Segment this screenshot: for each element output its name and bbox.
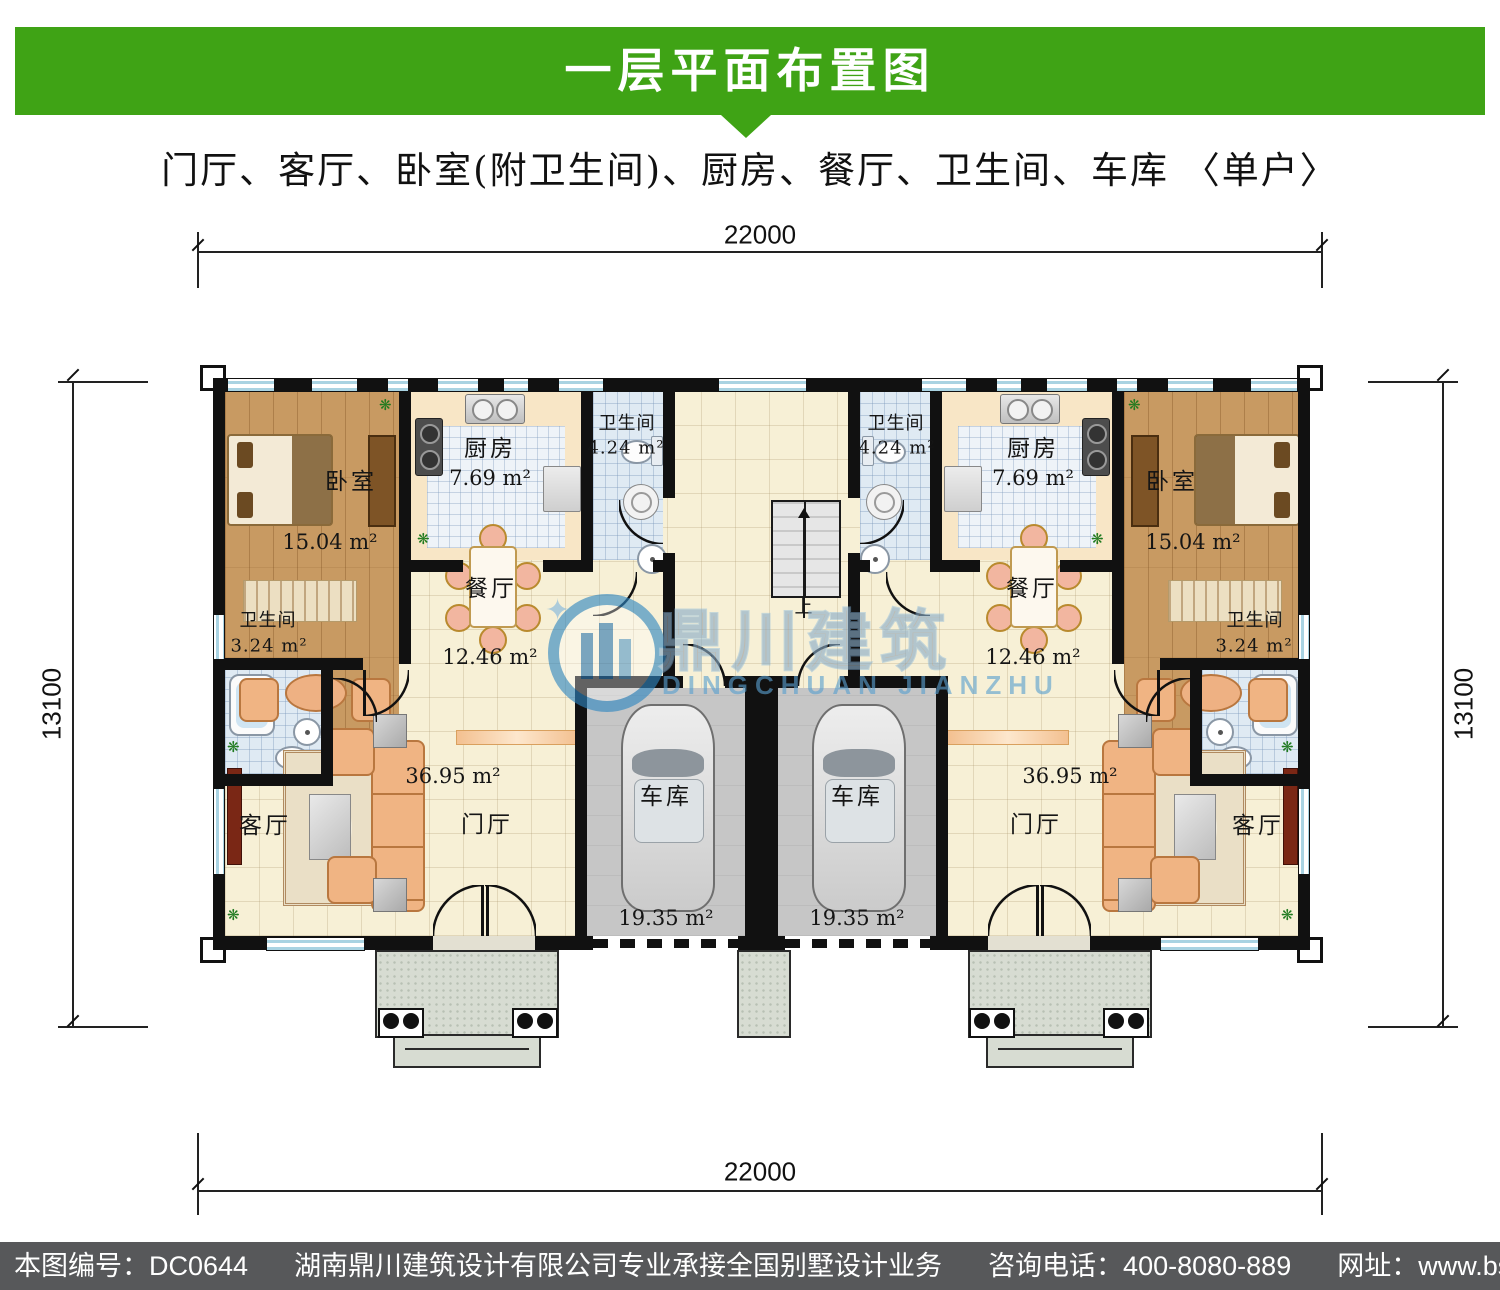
chair-icon: [513, 562, 541, 590]
entry-door-left-unit: [485, 885, 536, 936]
door-arc-bath-top-left: [593, 572, 637, 616]
door-leaf: [486, 885, 489, 936]
room-label-foyer: 门厅: [1010, 805, 1062, 839]
sofa-seat-icon: [1150, 856, 1200, 904]
room-label-living: 客厅: [1232, 806, 1284, 840]
entrance-threshold-left: [433, 936, 535, 950]
porch-column-icon: [512, 1008, 558, 1038]
wall-kitchen-bottom-left: [399, 560, 463, 572]
window-icon: [213, 788, 225, 875]
wall-bedroom-bottom-right: [1160, 658, 1310, 670]
window-icon: [1046, 378, 1088, 392]
window-icon: [718, 378, 807, 392]
wall-garage-right: [936, 688, 948, 936]
garage-door-right: [785, 939, 930, 948]
wall-hall-left: [663, 378, 675, 498]
wall-bath-side-bottom-right: [1190, 774, 1310, 786]
room-label-garage: 车库: [640, 777, 692, 811]
sofa-seat-icon: [327, 856, 377, 904]
wall-bedroom-bottom-left: [213, 658, 363, 670]
dim-line-bottom: [197, 1190, 1323, 1192]
wall-kitchen-bath-left: [581, 392, 593, 560]
bed-icon: [1194, 434, 1300, 526]
wall-outer-bottom: [535, 936, 593, 950]
room-area-foyer: 36.95 m²: [1022, 764, 1117, 788]
wall-garage-center: [745, 688, 778, 936]
window-icon: [387, 378, 409, 392]
dim-line-left: [72, 381, 74, 1028]
website: 网址：www.bstzcs.com: [1337, 1251, 1500, 1281]
door-leaf: [1041, 885, 1044, 936]
window-icon: [1160, 937, 1259, 951]
wall-hall-garage: [725, 676, 798, 688]
plant-icon: ❋: [417, 530, 430, 548]
window-icon: [1298, 614, 1310, 660]
dim-ext-line: [197, 1133, 199, 1215]
window-icon: [213, 614, 225, 660]
window-icon: [1116, 378, 1138, 392]
window-icon: [266, 937, 365, 951]
armchair-icon: [1248, 678, 1288, 722]
window-icon: [311, 378, 358, 392]
room-list-subtitle: 门厅、客厅、卧室(附卫生间)、厨房、餐厅、卫生间、车库 〈单户〉: [0, 140, 1500, 194]
entry-door-right-unit: [988, 885, 1039, 936]
door-arc-garage-left: [683, 644, 725, 686]
door-arc-hall-left: [619, 500, 663, 544]
door-leaf: [481, 885, 484, 936]
room-label-bath-top: 卫生间: [868, 409, 925, 435]
wall-kitchen-bottom-right: [930, 560, 980, 572]
wall-kitchen-bottom-right: [1060, 560, 1124, 572]
dim-tick: [1437, 369, 1450, 382]
room-area-kitchen: 7.69 m²: [449, 466, 531, 490]
wall-outer-bottom: [930, 936, 988, 950]
wall-bath-side-right: [1190, 670, 1202, 780]
center-step: [737, 950, 791, 1038]
room-label-kitchen: 厨房: [1007, 429, 1059, 463]
page-title: 一层平面布置图: [15, 27, 1485, 115]
stove-icon: [415, 418, 443, 476]
room-area-garage: 19.35 m²: [618, 906, 713, 930]
room-area-dining: 12.46 m²: [442, 645, 537, 669]
window-icon: [996, 378, 1022, 392]
bed-icon: [227, 434, 333, 526]
plant-icon: ❋: [227, 906, 240, 924]
room-label-dining: 餐厅: [465, 569, 517, 603]
side-table-icon: [373, 878, 407, 912]
door-arc-bath-top-right: [886, 572, 930, 616]
stove-icon: [1082, 418, 1110, 476]
wall-bath-side-left: [321, 670, 333, 780]
wall-bedroom-kitchen-left: [399, 392, 411, 664]
window-icon: [437, 378, 479, 392]
dim-tick: [67, 369, 80, 382]
chair-icon: [513, 604, 541, 632]
room-label-dining: 餐厅: [1006, 569, 1058, 603]
wall-hall-garage: [840, 676, 948, 688]
dim-ext-line: [1368, 1026, 1458, 1028]
header-banner: 一层平面布置图: [15, 27, 1485, 115]
plant-icon: ❋: [1091, 530, 1104, 548]
room-area-bath-side: 3.24 m²: [1215, 636, 1292, 657]
dim-ext-line: [197, 232, 199, 288]
dim-line-right: [1442, 381, 1444, 1028]
coffee-table-icon: [309, 794, 351, 860]
room-area-garage: 19.35 m²: [809, 906, 904, 930]
room-area-bedroom: 15.04 m²: [282, 530, 377, 554]
wall-bedroom-kitchen-right: [1112, 392, 1124, 664]
shoe-cabinet-icon: [456, 730, 578, 745]
room-area-foyer: 36.95 m²: [405, 764, 500, 788]
room-area-bedroom: 15.04 m²: [1145, 530, 1240, 554]
dim-label-bottom: 22000: [724, 1157, 796, 1188]
pedestal-sink-icon: [1206, 718, 1234, 746]
room-area-kitchen: 7.69 m²: [992, 466, 1074, 490]
door-arc-hall-right: [860, 500, 904, 544]
fridge-icon: [543, 466, 581, 512]
room-label-bath-side: 卫生间: [240, 606, 297, 632]
dim-ext-line: [1321, 232, 1323, 288]
door-leaf: [1036, 885, 1039, 936]
window-icon: [1167, 378, 1214, 392]
window-icon: [1250, 378, 1298, 392]
dim-ext-line: [1321, 1133, 1323, 1215]
phone: 咨询电话：400-8080-889: [988, 1251, 1291, 1281]
room-label-living: 客厅: [239, 806, 291, 840]
side-table-icon: [373, 714, 407, 748]
plant-icon: ❋: [1128, 396, 1141, 414]
drawing-number: 本图编号：DC0644: [14, 1251, 248, 1281]
wall-kitchen-bottom-left: [543, 560, 593, 572]
wall-garage-left: [575, 688, 587, 936]
room-label-bath-top: 卫生间: [599, 409, 656, 435]
door-arc-bath-side-left: [333, 678, 377, 722]
kitchen-sink-icon: [465, 394, 525, 424]
armchair-icon: [239, 678, 279, 722]
door-arc-bath-side-right: [1146, 678, 1190, 722]
shoe-cabinet-icon: [947, 730, 1069, 745]
door-arc-garage-right: [798, 644, 840, 686]
fridge-icon: [944, 466, 982, 512]
room-area-bath-top: 4.24 m²: [587, 438, 664, 459]
room-label-foyer: 门厅: [461, 805, 513, 839]
plant-icon: ❋: [227, 738, 240, 756]
room-label-bedroom: 卧室: [1146, 462, 1198, 496]
dim-line-top: [197, 251, 1323, 253]
floor-plan-page: 一层平面布置图 门厅、客厅、卧室(附卫生间)、厨房、餐厅、卫生间、车库 〈单户〉…: [0, 0, 1500, 1290]
footer-bar: 本图编号：DC0644湖南鼎川建筑设计有限公司专业承接全国别墅设计业务咨询电话：…: [0, 1242, 1500, 1290]
entry-door-left-unit: [433, 885, 484, 936]
room-label-garage: 车库: [831, 777, 883, 811]
window-icon: [1298, 788, 1310, 875]
plant-icon: ❋: [1281, 738, 1294, 756]
coffee-table-icon: [1174, 794, 1216, 860]
room-area-bath-side: 3.24 m²: [230, 636, 307, 657]
window-icon: [503, 378, 529, 392]
stairs-up-label: 上: [795, 593, 814, 619]
entrance-threshold-right: [988, 936, 1090, 950]
porch-steps-right: [986, 1034, 1134, 1068]
plant-icon: ❋: [1281, 906, 1294, 924]
dim-label-right: 13100: [1449, 668, 1480, 740]
plant-icon: ❋: [379, 396, 392, 414]
entry-door-right-unit: [1040, 885, 1091, 936]
garage-door-left: [593, 939, 738, 948]
window-icon: [558, 378, 604, 392]
porch-steps-left: [393, 1034, 541, 1068]
window-icon: [921, 378, 967, 392]
wall-hall-right: [848, 553, 860, 688]
wall-hall-left: [663, 553, 675, 688]
dim-ext-line: [1368, 381, 1458, 383]
porch-column-icon: [1103, 1008, 1149, 1038]
pedestal-sink-icon: [293, 718, 321, 746]
dim-label-left: 13100: [37, 668, 68, 740]
banner-pointer: [721, 115, 771, 138]
chair-icon: [1054, 604, 1082, 632]
floor-plan: ❋ ❋ ❋ ❋: [213, 378, 1310, 950]
company-name: 湖南鼎川建筑设计有限公司专业承接全国别墅设计业务: [294, 1251, 942, 1281]
wall-kitchen-bath-right: [930, 392, 942, 560]
wall-bath-side-bottom-left: [213, 774, 333, 786]
porch-column-icon: [378, 1008, 424, 1038]
dim-label-top: 22000: [724, 220, 796, 251]
room-label-bath-side: 卫生间: [1227, 606, 1284, 632]
room-area-dining: 12.46 m²: [985, 645, 1080, 669]
porch-column-icon: [969, 1008, 1015, 1038]
window-icon: [227, 378, 275, 392]
up-arrow-icon: [798, 508, 810, 518]
wall-hall-garage: [575, 676, 683, 688]
room-label-kitchen: 厨房: [464, 429, 516, 463]
side-table-icon: [1118, 878, 1152, 912]
room-area-bath-top: 4.24 m²: [858, 438, 935, 459]
kitchen-sink-icon: [1000, 394, 1060, 424]
room-label-bedroom: 卧室: [325, 462, 377, 496]
wall-outer-bottom: [738, 936, 785, 950]
